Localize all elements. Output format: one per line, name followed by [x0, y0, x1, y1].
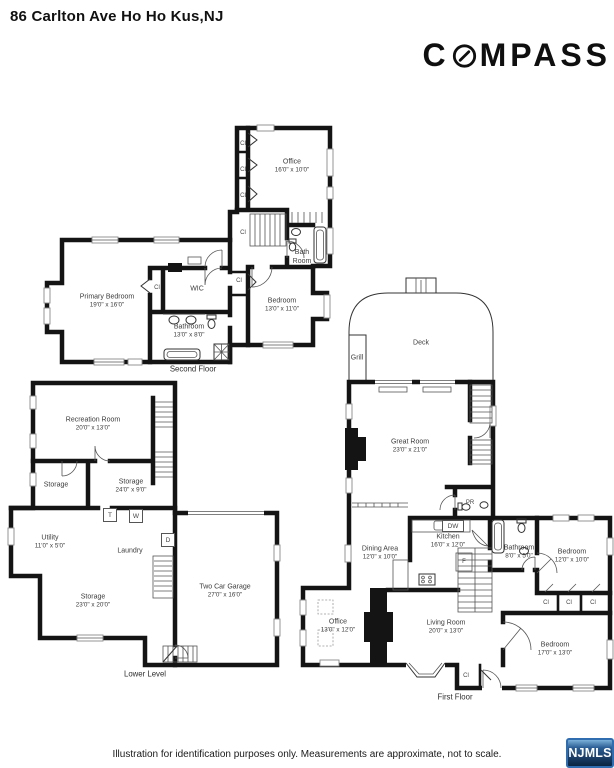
room-label-dining-area: Dining Area 12'0" x 10'0" — [362, 544, 398, 561]
room-label-living-room: Living Room 20'0" x 13'0" — [427, 618, 466, 635]
closet-label: Cl — [463, 673, 469, 679]
caption-lower-level: Lower Level — [124, 670, 166, 679]
njmls-logo: NJMLS — [566, 738, 614, 768]
powder-room-label: PR — [466, 500, 474, 506]
room-label-storage-large: Storage 23'0" x 20'0" — [76, 592, 111, 609]
closet-label: Cl — [236, 278, 242, 284]
room-label-deck: Deck — [413, 338, 429, 347]
room-label-bathroom-2f: Bathroom 13'0" x 8'0" — [173, 322, 204, 339]
room-label-bedroom-small: Bedroom 12'0" x 10'0" — [555, 547, 590, 564]
closet-label: Cl — [566, 600, 572, 606]
front-door — [482, 684, 502, 692]
closet-label: Cl — [240, 167, 246, 173]
room-label-grill: Grill — [351, 353, 363, 362]
closet-label: Cl — [154, 285, 160, 291]
disclaimer-text: Illustration for identification purposes… — [113, 749, 502, 760]
room-label-bedroom-2f: Bedroom 13'0" x 11'0" — [265, 296, 299, 313]
room-label-utility: Utility 11'0" x 5'0" — [35, 533, 66, 550]
closet-label: Cl — [543, 600, 549, 606]
closet-label: Cl — [240, 141, 246, 147]
closet-label: Cl — [240, 230, 246, 236]
lower-level-plan — [8, 383, 280, 665]
room-label-storage-small: Storage — [44, 480, 69, 489]
room-label-kitchen: Kitchen 16'0" x 12'0" — [431, 532, 466, 549]
room-label-office-2f: Office 16'0" x 10'0" — [275, 157, 310, 174]
caption-first-floor: First Floor — [437, 693, 472, 702]
closet-label: Cl — [590, 600, 596, 606]
garage-door — [188, 509, 264, 517]
closet-label: Cl — [240, 193, 246, 199]
room-label-laundry: Laundry — [117, 546, 142, 555]
caption-second-floor: Second Floor — [170, 365, 216, 374]
tank-marker: T — [103, 508, 117, 522]
room-label-office-1f: Office 13'0" x 12'0" — [321, 617, 356, 634]
dryer-marker: D — [161, 533, 175, 547]
room-label-garage: Two Car Garage 27'0" x 16'0" — [199, 582, 250, 599]
room-label-bathroom-1f: Bathroom 8'0" x 5'0" — [504, 543, 534, 560]
washer-marker: W — [129, 509, 143, 523]
room-label-recreation-room: Recreation Room 20'0" x 13'0" — [66, 415, 120, 432]
room-label-great-room: Great Room 23'0" x 21'0" — [391, 437, 429, 454]
bay-window — [406, 661, 445, 677]
room-label-storage-mid: Storage 24'0" x 9'0" — [115, 477, 146, 494]
deck-outline — [349, 278, 493, 382]
room-label-bedroom-large: Bedroom 17'0" x 13'0" — [538, 640, 573, 657]
room-label-wic: WIC — [190, 284, 204, 293]
room-label-bath-room: Bath Room — [287, 248, 317, 266]
wall-block — [168, 263, 182, 272]
room-label-primary-bedroom: Primary Bedroom 19'0" x 16'0" — [80, 292, 134, 309]
floorplan-drawing — [0, 0, 614, 768]
fridge-marker: F — [462, 559, 466, 565]
dishwasher-marker: DW — [442, 520, 464, 532]
